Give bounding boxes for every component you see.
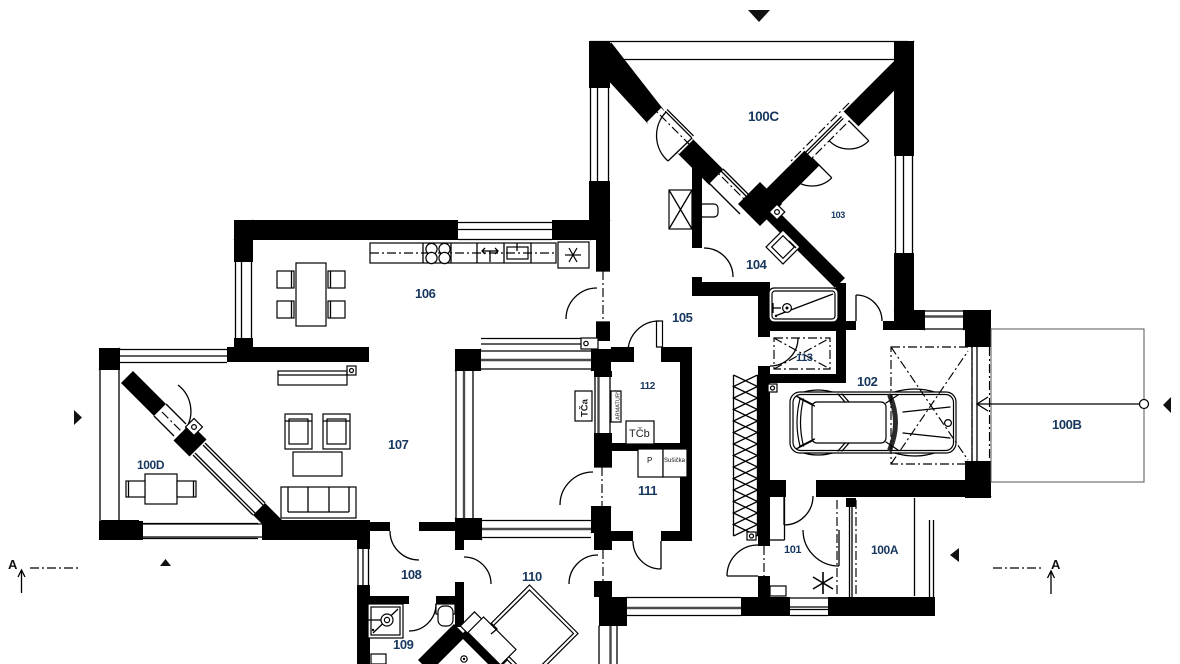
svg-text:P: P	[647, 456, 652, 465]
svg-text:100C: 100C	[748, 109, 779, 124]
svg-text:113: 113	[796, 352, 813, 364]
svg-text:104: 104	[746, 257, 768, 272]
svg-text:100B: 100B	[1052, 417, 1081, 432]
svg-text:A: A	[1051, 557, 1061, 572]
svg-text:106: 106	[415, 286, 436, 301]
svg-text:100D: 100D	[137, 458, 165, 472]
svg-text:109: 109	[393, 637, 414, 652]
svg-text:112: 112	[640, 381, 656, 392]
svg-text:102: 102	[857, 374, 878, 389]
svg-text:100A: 100A	[871, 543, 899, 557]
svg-text:105: 105	[672, 310, 693, 325]
svg-text:107: 107	[388, 437, 409, 452]
svg-text:A: A	[8, 557, 18, 572]
svg-text:TČa: TČa	[579, 398, 591, 417]
svg-text:111: 111	[638, 483, 657, 498]
svg-text:110: 110	[522, 569, 542, 584]
svg-text:108: 108	[401, 567, 422, 582]
svg-text:103: 103	[831, 210, 845, 220]
svg-text:101: 101	[784, 544, 801, 556]
svg-text:Sušička: Sušička	[664, 458, 686, 464]
svg-text:ARMATURY: ARMATURY	[616, 389, 622, 420]
svg-text:TČb: TČb	[629, 427, 650, 440]
